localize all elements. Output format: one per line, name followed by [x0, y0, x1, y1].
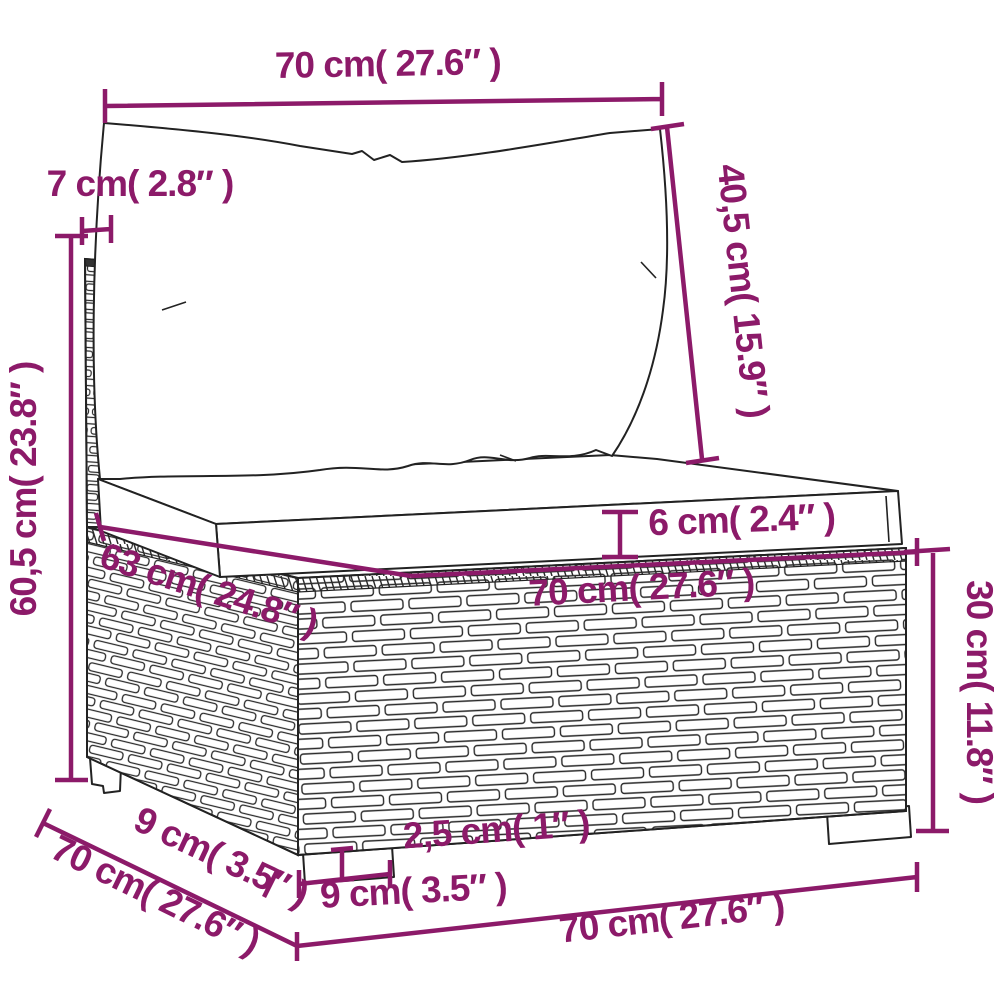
sofa-dimension-diagram: 70 cm( 27.6″ ) 7 cm( 2.8″ ) 40,5 cm( 15.… — [0, 0, 1000, 1000]
dim-top-width: 70 cm( 27.6″ ) — [105, 41, 662, 123]
dim-base-height-label: 30 cm( 11.8″ ) — [959, 580, 1000, 804]
dim-base-height: 30 cm( 11.8″ ) — [904, 549, 1000, 831]
dim-total-height: 60,5 cm( 23.8″ ) — [3, 236, 88, 780]
diagram-canvas: 70 cm( 27.6″ ) 7 cm( 2.8″ ) 40,5 cm( 15.… — [0, 0, 1000, 1000]
dim-back-thickness-label: 7 cm( 2.8″ ) — [47, 163, 234, 204]
dim-leg-width-label: 9 cm( 3.5″ ) — [319, 865, 508, 916]
dim-bottom-width-label: 70 cm( 27.6″ ) — [557, 884, 786, 950]
dim-back-cushion-height-label: 40,5 cm( 15.9″ ) — [710, 162, 777, 420]
dim-total-height-label: 60,5 cm( 23.8″ ) — [3, 362, 44, 617]
dim-back-cushion-height: 40,5 cm( 15.9″ ) — [651, 124, 777, 463]
dim-top-width-label: 70 cm( 27.6″ ) — [275, 41, 502, 86]
dim-cushion-thickness-label: 6 cm( 2.4″ ) — [648, 496, 836, 543]
